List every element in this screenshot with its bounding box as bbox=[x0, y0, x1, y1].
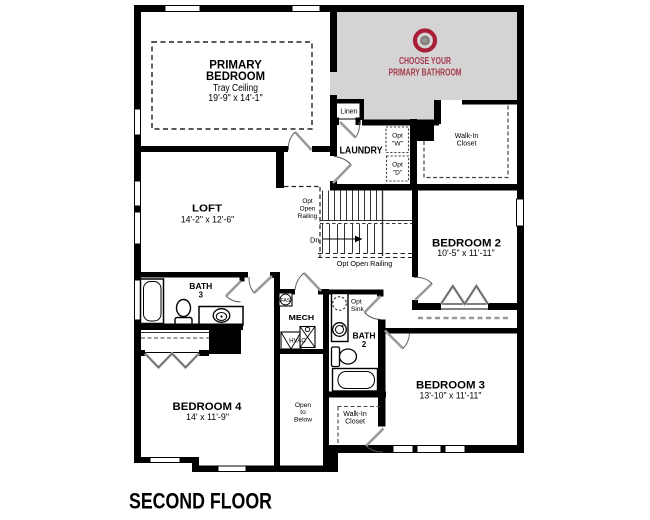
svg-text:LOFT: LOFT bbox=[192, 203, 223, 215]
svg-text:Closet: Closet bbox=[345, 418, 365, 425]
svg-text:3: 3 bbox=[199, 290, 204, 299]
svg-text:Opt: Opt bbox=[392, 133, 403, 140]
svg-text:Open: Open bbox=[300, 206, 316, 213]
svg-text:Walk-In: Walk-In bbox=[455, 133, 479, 140]
svg-text:LAUNDRY: LAUNDRY bbox=[340, 146, 383, 157]
svg-text:Below: Below bbox=[294, 417, 312, 424]
svg-text:"D": "D" bbox=[393, 170, 403, 177]
svg-text:SECOND FLOOR: SECOND FLOOR bbox=[129, 489, 272, 514]
svg-text:19'-9" x 14'-1": 19'-9" x 14'-1" bbox=[208, 93, 263, 104]
svg-text:10'-5" x 11'-11": 10'-5" x 11'-11" bbox=[437, 248, 495, 259]
svg-text:Dn: Dn bbox=[310, 236, 320, 245]
svg-text:Sink: Sink bbox=[351, 306, 365, 313]
svg-text:13'-10" x 11'-11": 13'-10" x 11'-11" bbox=[420, 391, 482, 402]
svg-text:FAS: FAS bbox=[281, 298, 291, 304]
svg-text:Opt Open Railing: Opt Open Railing bbox=[337, 259, 393, 268]
svg-text:Open: Open bbox=[295, 402, 311, 409]
svg-text:HVAC: HVAC bbox=[289, 338, 306, 345]
svg-text:Railing: Railing bbox=[298, 213, 318, 220]
svg-text:Walk-In: Walk-In bbox=[343, 411, 367, 418]
svg-text:"W": "W" bbox=[392, 141, 404, 148]
svg-text:14' x 11'-9": 14' x 11'-9" bbox=[186, 412, 229, 423]
svg-text:to: to bbox=[300, 409, 306, 416]
svg-text:MECH: MECH bbox=[289, 313, 315, 322]
svg-text:BEDROOM: BEDROOM bbox=[206, 69, 265, 83]
svg-text:2: 2 bbox=[362, 340, 367, 349]
svg-text:CHOOSE YOUR: CHOOSE YOUR bbox=[399, 55, 451, 67]
svg-text:Opt: Opt bbox=[351, 299, 362, 306]
svg-text:PRIMARY BATHROOM: PRIMARY BATHROOM bbox=[389, 67, 462, 79]
svg-text:Closet: Closet bbox=[457, 140, 477, 147]
svg-text:14'-2" x 12'-6": 14'-2" x 12'-6" bbox=[181, 215, 235, 225]
svg-text:Opt: Opt bbox=[392, 162, 403, 169]
svg-text:Linen: Linen bbox=[340, 109, 357, 116]
svg-text:Opt: Opt bbox=[302, 198, 313, 205]
